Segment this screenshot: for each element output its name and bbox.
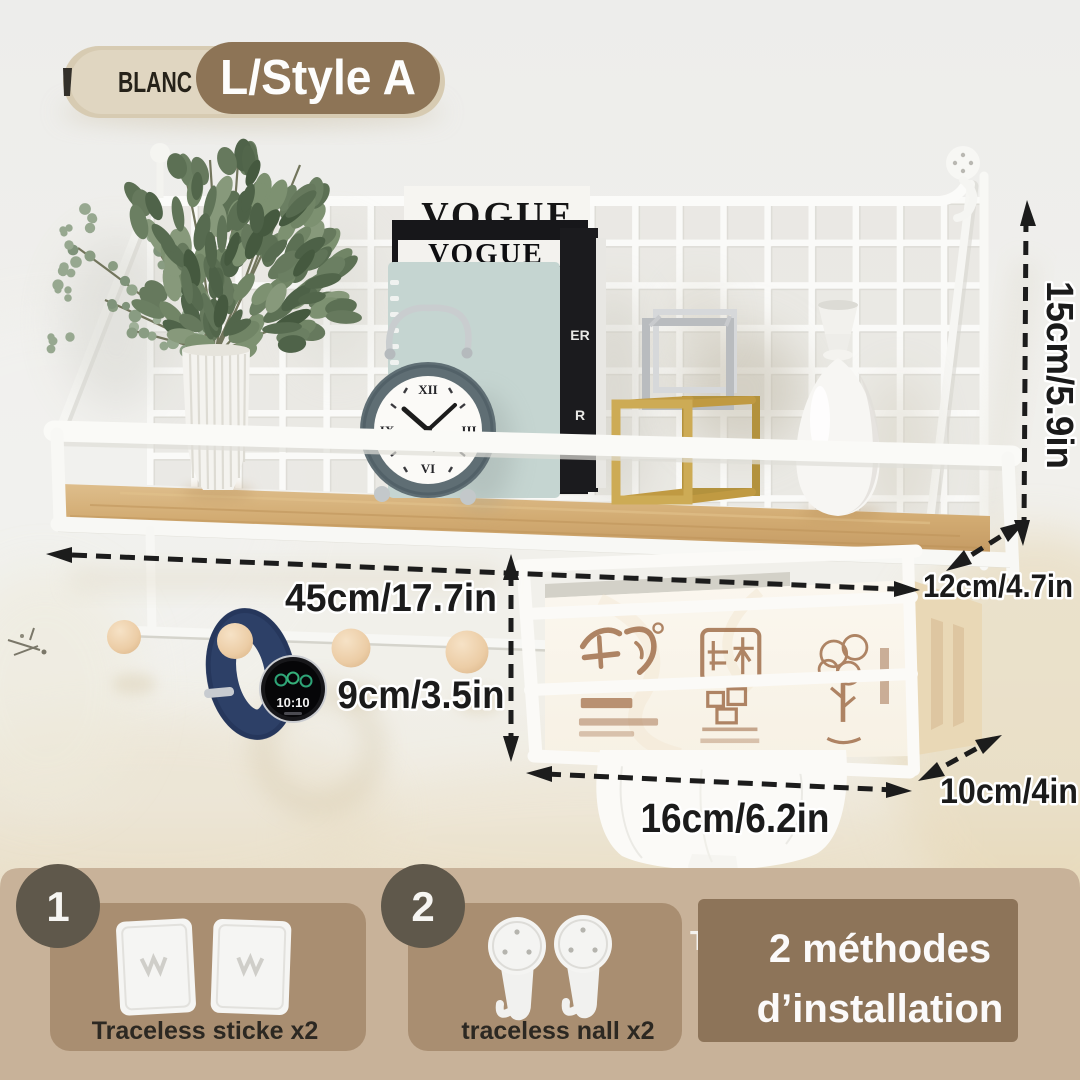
- svg-text:1: 1: [46, 883, 69, 930]
- svg-text:16cm/6.2in: 16cm/6.2in: [641, 795, 830, 841]
- svg-text:15cm/5.9in: 15cm/5.9in: [1038, 281, 1080, 469]
- svg-text:ER: ER: [570, 327, 589, 343]
- svg-text:traceless nall x2: traceless nall x2: [461, 1017, 654, 1045]
- svg-text:L/Style A: L/Style A: [220, 51, 416, 105]
- svg-text:12cm/4.7in: 12cm/4.7in: [923, 568, 1073, 604]
- svg-text:VI: VI: [421, 461, 435, 476]
- svg-text:d’installation: d’installation: [757, 987, 1004, 1031]
- svg-text:XII: XII: [418, 382, 438, 397]
- svg-text:10cm/4in: 10cm/4in: [940, 772, 1078, 811]
- svg-text:2 méthodes: 2 méthodes: [769, 927, 991, 971]
- svg-text:R: R: [575, 407, 585, 423]
- svg-text:BLANC: BLANC: [118, 67, 192, 99]
- svg-text:Traceless sticke x2: Traceless sticke x2: [92, 1017, 319, 1045]
- svg-text:2: 2: [411, 883, 434, 930]
- svg-text:45cm/17.7in: 45cm/17.7in: [285, 577, 497, 620]
- svg-text:10:10: 10:10: [276, 695, 309, 710]
- svg-text:9cm/3.5in: 9cm/3.5in: [338, 674, 505, 717]
